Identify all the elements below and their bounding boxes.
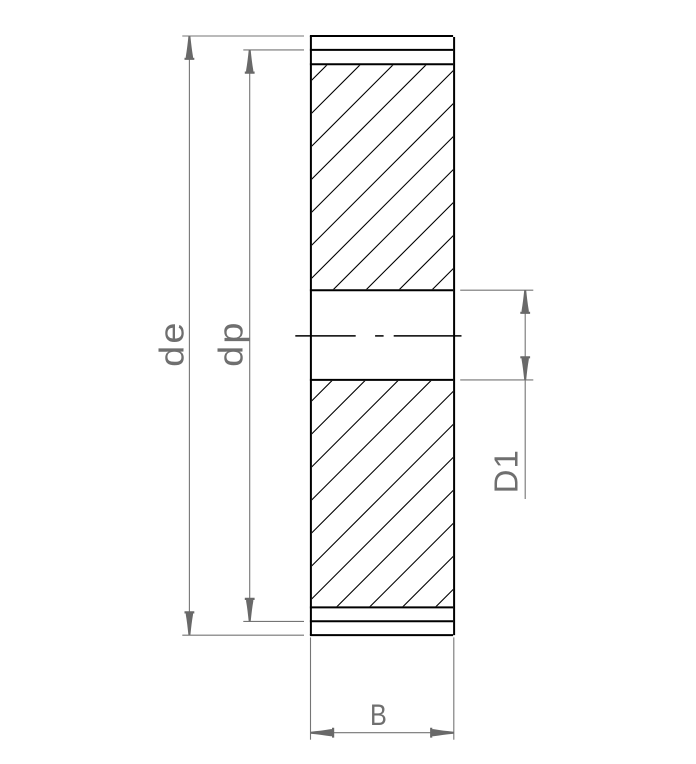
svg-text:D1: D1 [488, 449, 525, 493]
svg-text:de: de [154, 320, 192, 367]
svg-text:dp: dp [213, 320, 251, 367]
svg-text:B: B [370, 698, 387, 732]
